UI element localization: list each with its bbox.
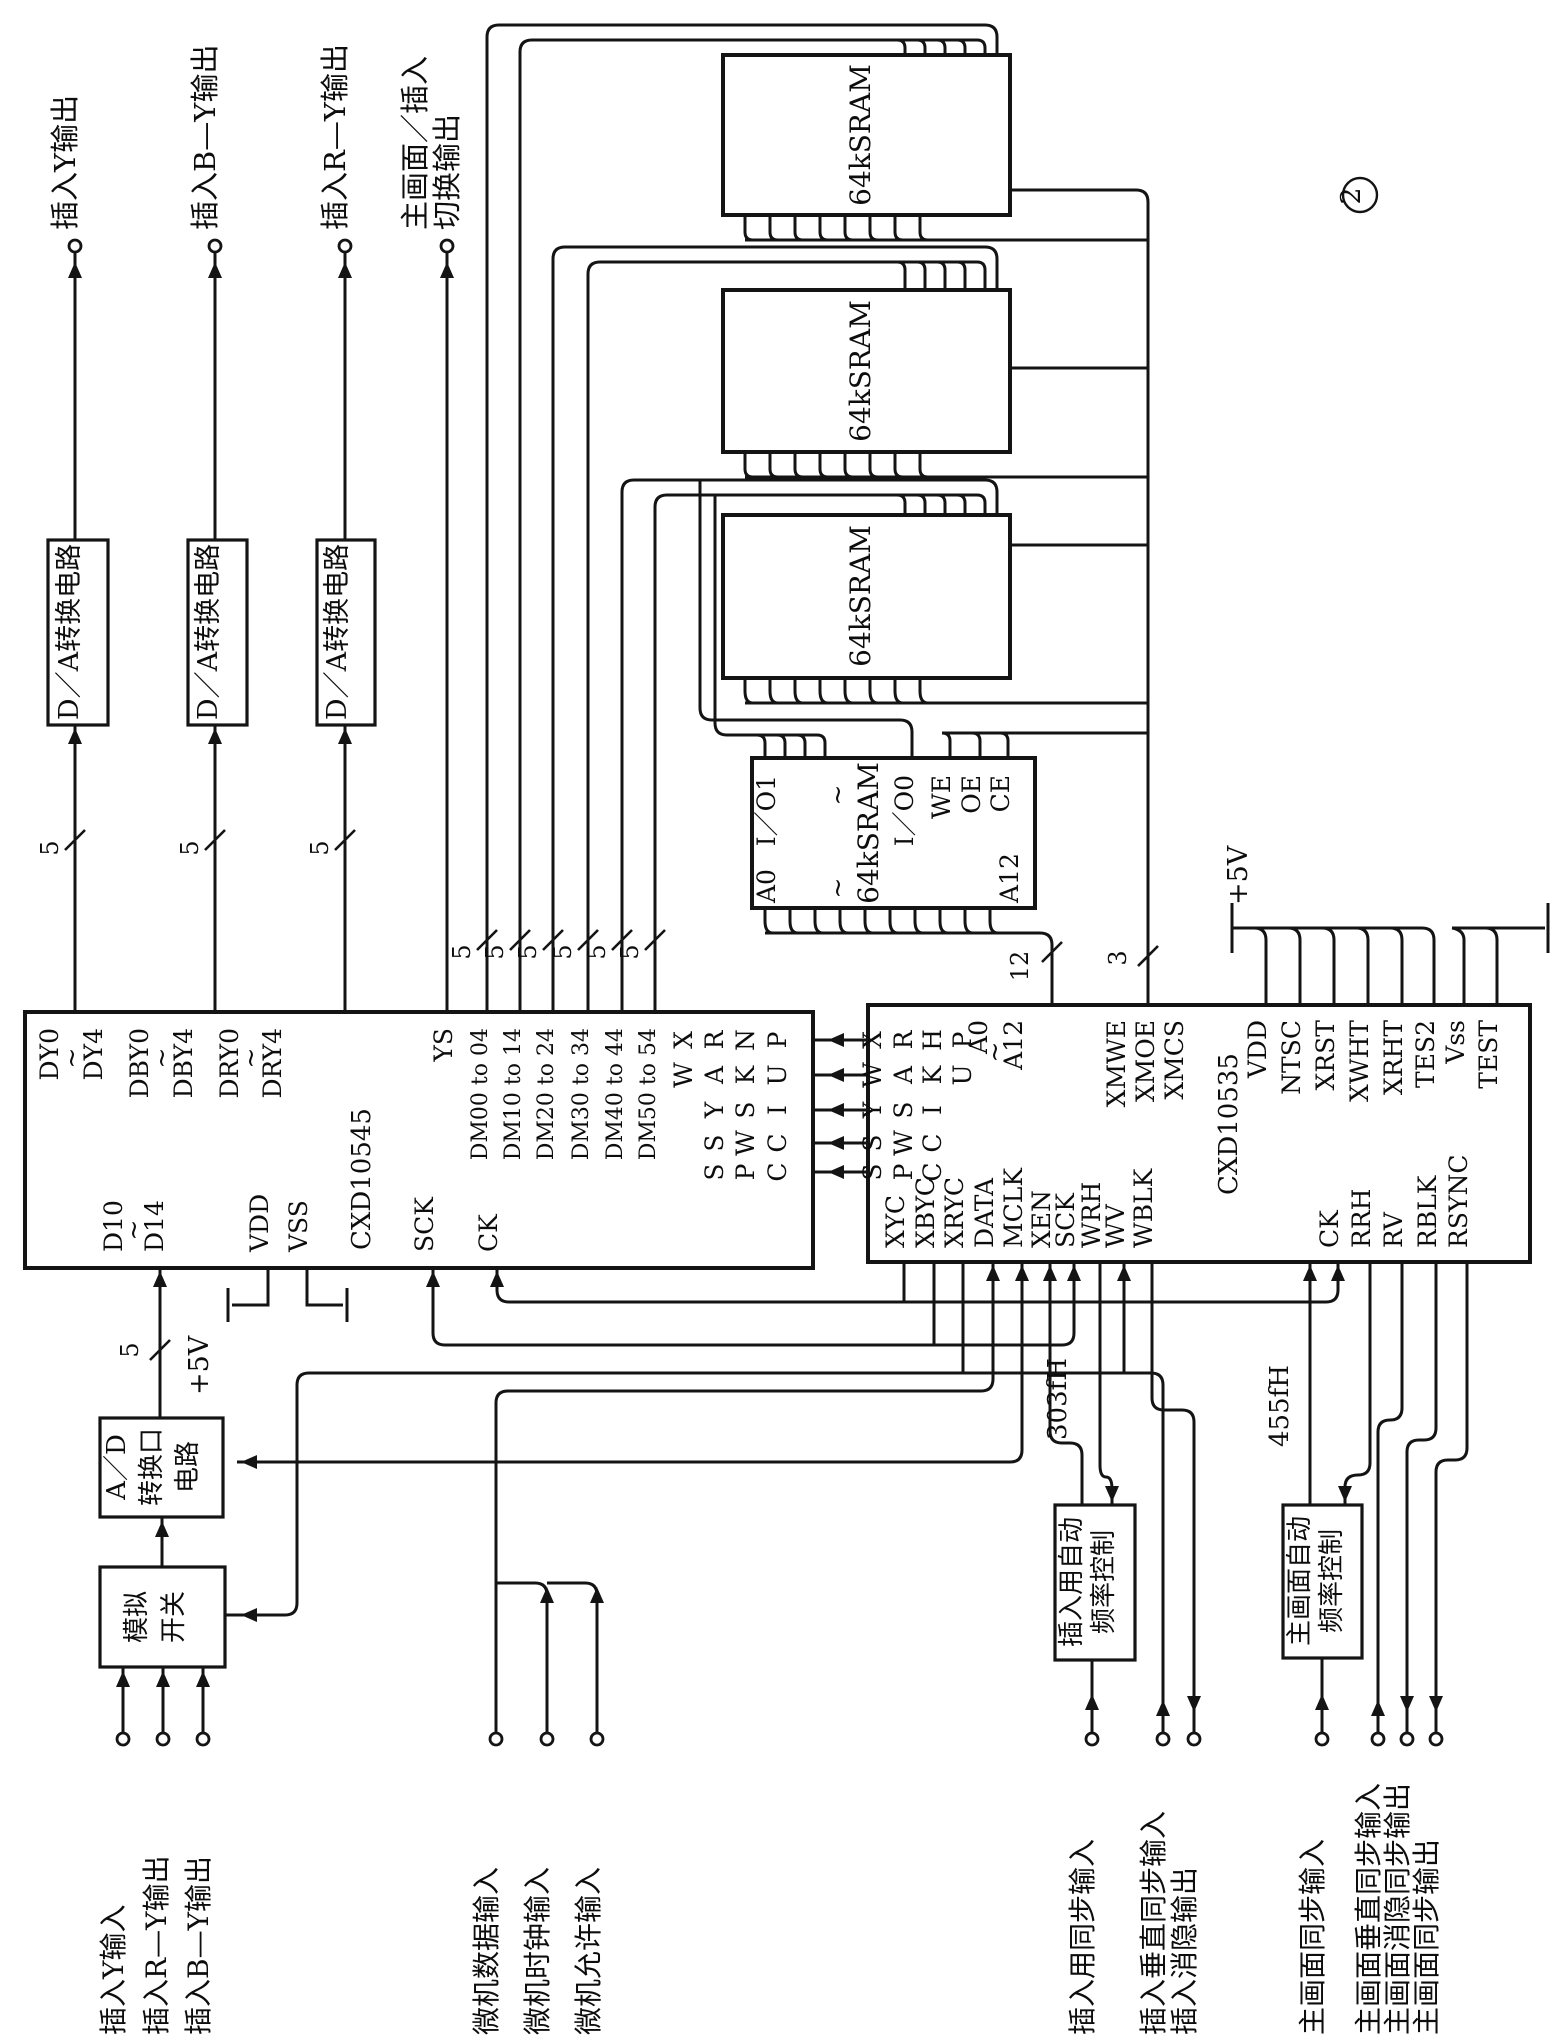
bus5-dm40: 5 bbox=[583, 944, 611, 959]
bus5-dm20: 5 bbox=[514, 944, 542, 959]
pin-tes2: TES2 bbox=[1411, 1020, 1440, 1088]
pin-45-r4c4: C bbox=[763, 1133, 792, 1152]
arrows-down bbox=[1105, 1486, 1443, 1712]
pin-45-r2c4: U bbox=[763, 1064, 792, 1085]
pin-rblk: RBLK bbox=[1413, 1174, 1442, 1248]
pin-45-r3c4: I bbox=[763, 1105, 792, 1115]
pin-xrst: XRST bbox=[1311, 1020, 1340, 1091]
pin-45-r3c3: S bbox=[731, 1101, 760, 1118]
pin-d14: D14 bbox=[140, 1200, 169, 1252]
pin-ntsc: NTSC bbox=[1277, 1020, 1306, 1095]
pin-35-a12: A12 bbox=[999, 1020, 1028, 1071]
pin-dm50: DM50 to 54 bbox=[636, 1028, 661, 1160]
sram1-label: 64kSRAM bbox=[844, 64, 877, 206]
sram4-pin-oe: OE bbox=[957, 775, 986, 814]
terminal-insert-y-out bbox=[69, 240, 81, 252]
pin-45-r5c2: S bbox=[700, 1163, 729, 1180]
pin-35-sck: SCK bbox=[1051, 1192, 1080, 1248]
pin-45-vss: VSS bbox=[284, 1200, 313, 1253]
da-box-2-label: D／A转换电路 bbox=[193, 544, 224, 720]
pin-35-r5c1: S bbox=[858, 1163, 887, 1180]
terminal-label-mcu-data: 微机数据输入 bbox=[470, 1867, 503, 2035]
terminal-label-insert-sync-in: 插入用同步输入 bbox=[1066, 1839, 1099, 2035]
pin-35-r4c2: W bbox=[889, 1130, 918, 1156]
pin-rsync: RSYNC bbox=[1444, 1155, 1473, 1248]
terminal-label-main-insert-switch-2: 切换输出 bbox=[430, 114, 464, 230]
terminal-insert-by-out bbox=[209, 240, 221, 252]
freq-303fh: 303fH bbox=[1043, 1358, 1073, 1440]
terminal-label-insert-blank-out: 插入消隐输出 bbox=[1168, 1867, 1201, 2035]
afc-insert-label-1: 插入用自动 bbox=[1057, 1517, 1087, 1647]
terminal-label-insert-y-in: 插入Y输入 bbox=[97, 1905, 130, 2036]
freq-455fh: 455fH bbox=[1265, 1365, 1295, 1447]
pin-35-r2c2: A bbox=[889, 1065, 918, 1085]
pin-35-r1c3: H bbox=[918, 1029, 947, 1051]
terminal-main-insert-switch-out bbox=[441, 240, 453, 252]
pin-dby4: DBY4 bbox=[169, 1028, 198, 1098]
sram2-label: 64kSRAM bbox=[844, 300, 877, 442]
pin-35-r2c4: U bbox=[948, 1064, 977, 1085]
pin-35-r4c3: C bbox=[918, 1133, 947, 1152]
pip-circuit-schematic: 插入Y输出插入B—Y输出插入R—Y输出主画面／插入切换输出D／A转换电路D／A转… bbox=[0, 0, 1566, 2041]
pin-35-r3c1: Y bbox=[858, 1101, 887, 1119]
pin-35-vdd: VDD bbox=[1243, 1020, 1272, 1079]
terminal-mcu-data bbox=[490, 1733, 502, 1745]
pin-data: DATA bbox=[970, 1177, 999, 1248]
sram4-pin-a0: A0 bbox=[752, 869, 781, 904]
terminal-label-main-sync-out: 主画面同步输出 bbox=[1410, 1839, 1443, 2035]
pin-dm20: DM20 to 24 bbox=[534, 1028, 559, 1160]
pin-dm40: DM40 to 44 bbox=[603, 1028, 628, 1160]
pin-xbyc: XBYC bbox=[911, 1177, 940, 1248]
pin-dry4: DRY4 bbox=[258, 1028, 287, 1099]
bus12-addr: 12 bbox=[1006, 951, 1034, 982]
terminal-insert-by-in bbox=[197, 1733, 209, 1745]
sram3-label: 64kSRAM bbox=[844, 525, 877, 667]
da-box-3-label: D／A转换电路 bbox=[322, 544, 353, 720]
pin-rv: RV bbox=[1379, 1211, 1408, 1248]
ad-box-label-1: A／D bbox=[102, 1434, 132, 1501]
pin-45-r1c3: N bbox=[731, 1029, 760, 1051]
terminal-label-insert-ry-out: 插入R—Y输出 bbox=[318, 44, 352, 230]
pin-dm10: DM10 to 14 bbox=[501, 1028, 526, 1160]
terminal-label-mcu-clock: 微机时钟输入 bbox=[521, 1867, 554, 2035]
bus5-dm00: 5 bbox=[448, 944, 476, 959]
pin-45-r4c3: W bbox=[731, 1130, 760, 1156]
bus3-ctl: 3 bbox=[1104, 950, 1132, 965]
pin-35-r1c2: R bbox=[889, 1029, 918, 1049]
pin-35-r3c2: S bbox=[889, 1101, 918, 1118]
sram4-tilde-top: ~ bbox=[823, 785, 852, 806]
terminal-label-insert-by-out: 插入B—Y输出 bbox=[188, 45, 222, 230]
pin-45-r4c2: S bbox=[700, 1134, 729, 1151]
pin-xmwe: XMWE bbox=[1102, 1020, 1131, 1107]
figure-number: 2 bbox=[1336, 187, 1367, 204]
pin-45-r1c1: X bbox=[669, 1031, 698, 1049]
pin-xryc: XRYC bbox=[940, 1177, 969, 1248]
power-5v-left: +5V bbox=[184, 1335, 215, 1395]
sram4-tilde-bot: ~ bbox=[823, 878, 852, 899]
bus5-dm10: 5 bbox=[481, 944, 509, 959]
pin-35-r3c3: I bbox=[918, 1105, 947, 1115]
sram4-pin-ce: CE bbox=[986, 775, 1015, 812]
pin-45-sck: SCK bbox=[410, 1196, 439, 1252]
pin-dy4: DY4 bbox=[79, 1028, 108, 1080]
pin-45-r5c4: C bbox=[763, 1162, 792, 1181]
wires-dm-bus-loops bbox=[487, 25, 1148, 1012]
terminal-label-insert-by: 插入B—Y输出 bbox=[182, 1856, 215, 2035]
terminal-circles bbox=[69, 240, 1442, 1745]
pin-xmcs: XMCS bbox=[1160, 1020, 1189, 1100]
terminal-label-insert-vsync-in: 插入垂直同步输入 bbox=[1137, 1811, 1170, 2035]
sram4-pin-io0: I／O0 bbox=[890, 775, 919, 846]
pin-xwht: XWHT bbox=[1345, 1020, 1374, 1102]
afc-insert-label-2: 频率控制 bbox=[1089, 1530, 1119, 1634]
terminal-main-blank-sync-out bbox=[1401, 1733, 1413, 1745]
pin-45-r1c4: P bbox=[763, 1032, 792, 1049]
pin-rrh: RRH bbox=[1347, 1189, 1376, 1248]
bus5-dm30: 5 bbox=[549, 944, 577, 959]
afc-main-label-2: 频率控制 bbox=[1317, 1529, 1347, 1633]
pin-test: TEST bbox=[1474, 1020, 1503, 1089]
terminal-label-insert-y-out: 插入Y输出 bbox=[48, 95, 82, 230]
pin-35-vss: Vss bbox=[1441, 1020, 1470, 1065]
wires-sram-address-fans bbox=[745, 190, 1148, 1005]
terminal-label-insert-ry: 插入R—Y输出 bbox=[140, 1855, 173, 2035]
pin-mclk: MCLK bbox=[999, 1167, 1028, 1248]
ad-box-label-2: 转换口 bbox=[137, 1428, 167, 1506]
pin-35-ck: CK bbox=[1315, 1209, 1344, 1248]
terminal-mcu-enable bbox=[591, 1733, 603, 1745]
terminal-insert-vsync-in bbox=[1157, 1733, 1169, 1745]
terminal-label-main-sync-in: 主画面同步输入 bbox=[1296, 1839, 1329, 2035]
pin-45-r2c2: A bbox=[700, 1065, 729, 1085]
pin-45-vdd: VDD bbox=[245, 1194, 274, 1253]
pin-45-ck: CK bbox=[474, 1213, 503, 1252]
pin-xrht: XRHT bbox=[1379, 1020, 1408, 1095]
pin-ys: YS bbox=[429, 1028, 458, 1063]
pin-45-r3c2: Y bbox=[700, 1101, 729, 1119]
pin-35-r1c1: X bbox=[858, 1031, 887, 1049]
terminal-label-main-insert-switch-1: 主画面／插入 bbox=[398, 56, 432, 230]
bus5-da2: 5 bbox=[176, 840, 204, 855]
terminal-insert-ry-out bbox=[339, 240, 351, 252]
terminal-insert-ry-in bbox=[157, 1733, 169, 1745]
sram4-label: 64kSRAM bbox=[852, 762, 885, 904]
bus5-da3: 5 bbox=[306, 840, 334, 855]
terminal-insert-sync-in bbox=[1086, 1733, 1098, 1745]
da-box-1-label: D／A转换电路 bbox=[54, 544, 85, 720]
power-5v-right: +5V bbox=[1223, 845, 1254, 905]
sram4-pin-a12: A12 bbox=[995, 853, 1024, 904]
bus5-da1: 5 bbox=[36, 840, 64, 855]
ad-box-label-3: 电路 bbox=[173, 1441, 203, 1493]
terminal-label-mcu-enable: 微机允许输入 bbox=[572, 1867, 605, 2035]
pin-35-r2c1: W bbox=[858, 1062, 887, 1088]
pin-45-r2c1: W bbox=[669, 1062, 698, 1088]
pin-wv: WV bbox=[1101, 1203, 1130, 1248]
bus5-d1x: 5 bbox=[116, 1342, 144, 1357]
pin-xyc: XYC bbox=[881, 1195, 910, 1248]
switch-box-label-2: 开关 bbox=[159, 1591, 189, 1643]
wires-power-rails bbox=[228, 903, 1548, 1322]
ic-label-cxd10535: CXD10535 bbox=[1214, 1053, 1244, 1195]
switch-box-label-1: 模拟 bbox=[122, 1591, 152, 1643]
terminal-insert-blank-out bbox=[1188, 1733, 1200, 1745]
schematic-page: 插入Y输出插入B—Y输出插入R—Y输出主画面／插入切换输出D／A转换电路D／A转… bbox=[0, 0, 1566, 2041]
pin-45-r2c3: K bbox=[731, 1064, 760, 1084]
wires-rails-bottom-left bbox=[123, 1262, 1338, 1733]
pin-wblk: WBLK bbox=[1129, 1167, 1158, 1248]
wires-output-terminals bbox=[75, 252, 447, 1012]
bus5-dm50: 5 bbox=[616, 944, 644, 959]
pin-35-r4c1: S bbox=[858, 1134, 887, 1151]
terminal-main-sync-out bbox=[1430, 1733, 1442, 1745]
pin-45-r5c3: P bbox=[731, 1164, 760, 1181]
wires-bottom-right bbox=[904, 1262, 1467, 1733]
terminal-mcu-clock bbox=[541, 1733, 553, 1745]
terminal-insert-y-in bbox=[117, 1733, 129, 1745]
pin-35-r2c3: K bbox=[918, 1064, 947, 1084]
pin-dm30: DM30 to 34 bbox=[569, 1028, 594, 1160]
pin-xmoe: XMOE bbox=[1131, 1020, 1160, 1102]
terminal-main-sync-in bbox=[1316, 1733, 1328, 1745]
ic-label-cxd10545: CXD10545 bbox=[347, 1108, 377, 1250]
pin-45-r1c2: R bbox=[700, 1029, 729, 1049]
sram4-pin-io1: I／O1 bbox=[752, 775, 781, 846]
sram4-pin-we: WE bbox=[927, 775, 956, 819]
afc-main-label-1: 主画面自动 bbox=[1285, 1516, 1315, 1646]
pin-dm00: DM00 to 04 bbox=[468, 1028, 493, 1160]
terminal-main-vsync-in bbox=[1372, 1733, 1384, 1745]
